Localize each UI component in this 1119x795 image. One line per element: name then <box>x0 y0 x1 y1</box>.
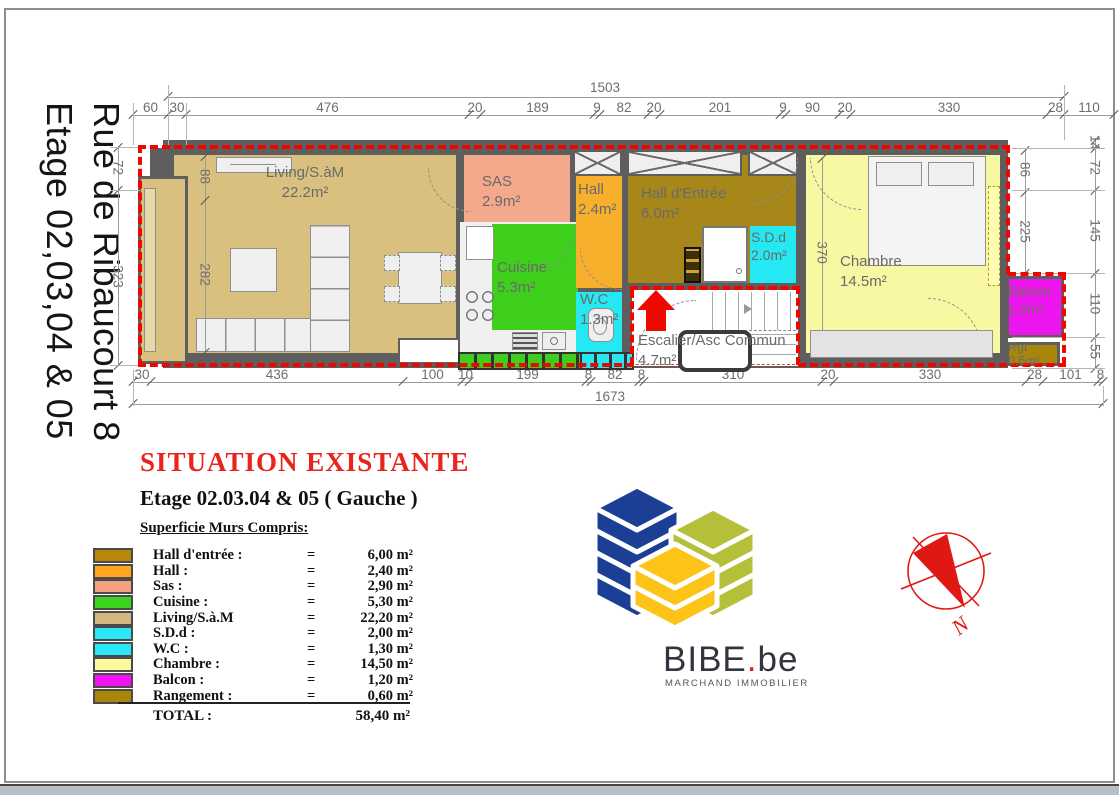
legend-total-row: TOTAL : 58,40 m² <box>153 708 410 725</box>
room-area: 2.4m² <box>578 200 616 220</box>
label-balcon: Balcon 1.2m² <box>1008 282 1051 318</box>
dim-extension-line <box>110 365 140 366</box>
dim-total-label: 1503 <box>565 80 645 95</box>
legend-area-value: 5,30 m² <box>337 594 413 611</box>
boundary-right-upper <box>1006 145 1010 274</box>
dim-extension-line <box>110 190 140 191</box>
boundary-jog <box>1008 272 1066 276</box>
room-name: SAS <box>482 172 520 192</box>
room-area: 22.2m² <box>195 183 415 203</box>
room-area: 4.7m² <box>638 351 786 371</box>
room-area: 1.3m² <box>580 310 618 330</box>
logo-name: BIBE <box>663 640 747 679</box>
legend-equals: = <box>307 578 337 595</box>
legend-area-value: 22,20 m² <box>337 610 413 627</box>
dim-label: 20 <box>815 100 875 115</box>
label-sas: SAS 2.9m² <box>482 172 520 211</box>
dim-label: 201 <box>690 100 750 115</box>
legend-row: Balcon :=1,20 m² <box>93 673 413 689</box>
boundary-right-lower <box>1062 272 1066 365</box>
room-area: 0.6m² <box>1008 354 1040 368</box>
legend-row: S.D.d :=2,00 m² <box>93 626 413 642</box>
dim-line <box>133 404 1103 405</box>
dim-label: 330 <box>900 367 960 382</box>
legend-equals: = <box>307 625 337 642</box>
room-name: Cuisine <box>497 258 547 278</box>
room-name: Rgt <box>1008 340 1040 354</box>
legend-area-value: 2,40 m² <box>337 563 413 580</box>
legend-area-value: 1,20 m² <box>337 672 413 689</box>
legend-equals: = <box>307 594 337 611</box>
legend-equals: = <box>307 610 337 627</box>
label-rgt: Rgt 0.6m² <box>1008 340 1040 369</box>
legend-row: Hall :=2,40 m² <box>93 564 413 580</box>
legend-area-value: 2,00 m² <box>337 625 413 642</box>
dim-label: 30 <box>112 367 172 382</box>
balcony-tiles-green <box>458 352 582 370</box>
bibe-logo-cubes-icon <box>575 478 775 638</box>
bibe-logo-text: BIBE.be <box>663 640 798 680</box>
dim-line <box>133 115 1114 116</box>
legend-total-label: TOTAL : <box>153 708 212 725</box>
legend-room-label: Balcon : <box>153 672 307 689</box>
living-low-window <box>398 338 460 364</box>
legend-color-swatch <box>93 595 133 610</box>
dim-label: 225 <box>1018 201 1033 261</box>
dim-label: 436 <box>247 367 307 382</box>
room-name: Chambre <box>840 252 902 272</box>
dim-extension-line <box>168 85 169 147</box>
label-cuisine: Cuisine 5.3m² <box>497 258 547 297</box>
room-name: S.D.d <box>751 228 787 246</box>
drawing-subtitle: Etage 02.03.04 & 05 ( Gauche ) <box>140 486 418 511</box>
legend-area-value: 2,90 m² <box>337 578 413 595</box>
room-name: Living/S.àM <box>195 163 415 183</box>
dim-extension-line <box>110 147 140 148</box>
boundary-stair-right <box>796 286 800 365</box>
dim-label: 20 <box>798 367 858 382</box>
legend-room-label: S.D.d : <box>153 625 307 642</box>
legend-room-label: Living/S.à.M <box>153 610 307 627</box>
legend-area-value: 1,30 m² <box>337 641 413 658</box>
legend-equals: = <box>307 672 337 689</box>
dim-extension-line <box>1012 148 1105 149</box>
boundary-top <box>138 145 1010 149</box>
legend-color-swatch <box>93 673 133 688</box>
legend-color-swatch <box>93 626 133 641</box>
dim-extension-line <box>1012 190 1105 191</box>
room-name: W.C <box>580 290 618 310</box>
legend-room-label: Hall : <box>153 563 307 580</box>
legend-row: Sas :=2,90 m² <box>93 579 413 595</box>
floor-plan-sheet: { "sidebar": { "line_right": "Rue de Rib… <box>0 0 1119 795</box>
wardrobe <box>810 330 993 358</box>
entry-arrow-icon <box>637 290 675 310</box>
legend-room-label: Sas : <box>153 578 307 595</box>
room-area: 2.9m² <box>482 192 520 212</box>
legend-color-swatch <box>93 642 133 657</box>
dim-label: 370 <box>815 223 830 283</box>
boundary-bottom-left <box>138 363 634 367</box>
dim-label: 72 <box>111 137 126 197</box>
dim-extension-line <box>1103 386 1104 406</box>
room-name: Balcon <box>1008 282 1051 300</box>
legend-row: Cuisine :=5,30 m² <box>93 595 413 611</box>
room-name: Hall <box>578 180 616 200</box>
entry-arrow-stem <box>646 309 666 331</box>
dim-label: 330 <box>919 100 979 115</box>
legend-row: Hall d'entrée :=6,00 m² <box>93 548 413 564</box>
legend-room-label: Cuisine : <box>153 594 307 611</box>
logo-dot: . <box>747 640 758 679</box>
dim-label: 145 <box>1088 200 1103 260</box>
dim-label: 282 <box>198 245 213 305</box>
label-hall-entree: Hall d'Entrée 6.0m² <box>641 184 726 223</box>
legend-room-label: W.C : <box>153 641 307 658</box>
logo-tld: be <box>758 640 799 679</box>
legend-room-label: Chambre : <box>153 656 307 673</box>
legend-row: Living/S.à.M=22,20 m² <box>93 610 413 626</box>
bibe-logo-tagline: MARCHAND IMMOBILIER <box>665 678 809 689</box>
legend-color-swatch <box>93 611 133 626</box>
legend-heading: Superficie Murs Compris: <box>140 520 308 537</box>
legend-room-label: Hall d'entrée : <box>153 547 307 564</box>
dim-label: 55 <box>1088 321 1103 381</box>
entree-closet <box>684 247 701 283</box>
drawing-title: SITUATION EXISTANTE <box>140 447 469 478</box>
dim-label: 323 <box>111 246 126 306</box>
dim-extension-line <box>186 103 187 145</box>
room-area: 1.2m² <box>1008 300 1051 318</box>
room-area: 6.0m² <box>641 204 726 224</box>
room-name: Escalier/Asc Commun <box>638 331 786 351</box>
legend-equals: = <box>307 656 337 673</box>
dim-label: 476 <box>298 100 358 115</box>
legend-color-swatch <box>93 657 133 672</box>
legend-color-swatch <box>93 579 133 594</box>
legend-color-swatch <box>93 564 133 579</box>
dim-line <box>133 382 1103 383</box>
boundary-stair-left <box>630 290 634 365</box>
dim-label: 20 <box>445 100 505 115</box>
legend-equals: = <box>307 547 337 564</box>
dim-extension-line <box>1064 85 1065 140</box>
label-escalier: Escalier/Asc Commun 4.7m² <box>638 331 786 370</box>
legend-equals: = <box>307 563 337 580</box>
label-living: Living/S.àM 22.2m² <box>195 163 415 202</box>
boundary-left <box>138 145 142 367</box>
room-area: 2.0m² <box>751 246 787 264</box>
label-hall: Hall 2.4m² <box>578 180 616 219</box>
balcony-tiles-cyan <box>580 352 634 370</box>
dim-label: 20 <box>624 100 684 115</box>
label-sdd: S.D.d 2.0m² <box>751 228 787 264</box>
room-name: Hall d'Entrée <box>641 184 726 204</box>
legend-table: Hall d'entrée :=6,00 m²Hall :=2,40 m²Sas… <box>93 548 413 704</box>
dim-label: 189 <box>508 100 568 115</box>
legend-row: W.C :=1,30 m² <box>93 642 413 658</box>
legend-total-rule <box>118 702 410 704</box>
legend-total-value: 58,40 m² <box>356 708 411 725</box>
dim-extension-line <box>133 103 134 145</box>
dim-extension-line <box>133 370 134 406</box>
room-area: 14.5m² <box>840 272 902 292</box>
legend-color-swatch <box>93 548 133 563</box>
dim-line <box>168 97 1064 98</box>
label-wc: W.C 1.3m² <box>580 290 618 329</box>
legend-equals: = <box>307 641 337 658</box>
legend-area-value: 6,00 m² <box>337 547 413 564</box>
dim-label: 72 <box>1088 138 1103 198</box>
label-chambre: Chambre 14.5m² <box>840 252 902 291</box>
dim-extension-line <box>1012 337 1105 338</box>
legend-area-value: 14,50 m² <box>337 656 413 673</box>
room-area: 5.3m² <box>497 278 547 298</box>
legend-row: Chambre :=14,50 m² <box>93 657 413 673</box>
dim-total-label: 1673 <box>570 389 650 404</box>
dim-label: 30 <box>147 100 207 115</box>
